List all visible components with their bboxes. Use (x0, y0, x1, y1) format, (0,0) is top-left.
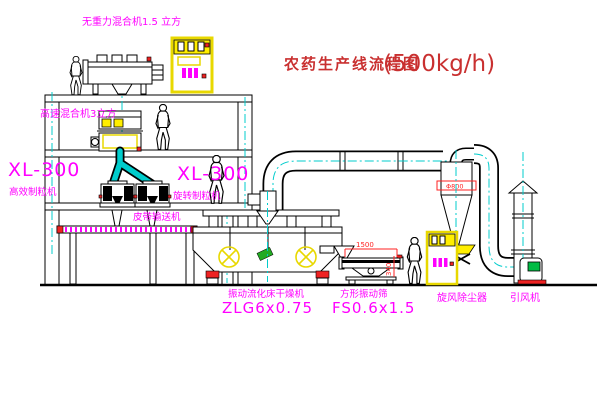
dryer-foot (207, 278, 218, 284)
sieve-height-dim: 340 (385, 263, 393, 276)
status-dot (450, 262, 454, 266)
dryer-spring-support (316, 271, 329, 278)
indicator-bar (444, 258, 448, 267)
vibration-mount (209, 216, 218, 227)
mixer2-yellow-panel (102, 119, 111, 127)
sieve-motor (368, 268, 374, 274)
status-dot (147, 57, 151, 61)
indicator-bar (433, 258, 437, 267)
sieve-foot (387, 280, 393, 284)
mixer-motor (152, 65, 163, 80)
induced-draft-fan (518, 258, 546, 284)
fan-label: 引风机 (510, 291, 540, 304)
mixer-inlet (127, 55, 137, 62)
belt-conveyor-label: 皮带输送机 (133, 211, 181, 223)
dryer-exhaust-duct (273, 151, 456, 214)
building-mid-slab (45, 150, 252, 157)
mixer-body (88, 62, 152, 84)
top-mixer-label: 无重力混合机1.5 立方 (82, 15, 181, 28)
vent-slit (432, 236, 437, 244)
indicator-bar (188, 68, 192, 78)
worker-figure (156, 104, 170, 149)
cyclone-label: 旋风除尘器 (437, 291, 487, 304)
vent-slit (178, 42, 184, 51)
status-dot (99, 195, 102, 198)
status-dot (202, 74, 206, 78)
mixer-discharge-cone (112, 84, 132, 94)
cabinet-window (178, 57, 200, 65)
mixer-inlet (97, 55, 107, 62)
granulator-block (159, 186, 168, 201)
granulator-base (135, 203, 170, 207)
mixer-leg (141, 84, 146, 94)
dryer-foot (317, 278, 328, 284)
granulator-block (103, 186, 112, 201)
cad-flow-diagram: 1500 340 Φ800 (0, 0, 600, 403)
motor-shaft (92, 139, 99, 146)
granulator-left-name: 高效制粒机 (9, 186, 57, 198)
granulator-left-unit (99, 181, 136, 226)
drawing-canvas: 1500 340 Φ800 (0, 0, 600, 403)
fan-base (518, 280, 546, 284)
status-dot (168, 195, 171, 198)
diagram-capacity: (500kg/h) (383, 51, 495, 77)
building-top-slab (45, 95, 252, 102)
floor2-mixer-label: 高速混合机3立方 (40, 107, 116, 120)
dryer-outlet-spout (320, 246, 334, 253)
status-dot (134, 195, 137, 198)
indicator-bar (182, 68, 186, 78)
duct-fill (273, 161, 443, 212)
mixer2-inner (103, 135, 137, 148)
vent-slit (198, 42, 204, 51)
vent-slit (440, 236, 445, 244)
fan-motor (528, 262, 540, 271)
granulator-mid-name: 旋转制粒机 (173, 190, 221, 202)
cyclone-diameter-dim: Φ800 (446, 183, 464, 191)
dryer-spring-support (206, 271, 219, 278)
indicator-bar (194, 68, 198, 78)
granulator-block (124, 186, 133, 201)
worker-figure (70, 56, 82, 94)
indicator-bar (439, 258, 443, 267)
control-cabinet-2 (427, 232, 457, 284)
sieve-foot (349, 280, 355, 284)
mixer-inlet (112, 55, 122, 62)
vibration-mount (248, 216, 257, 227)
worker-figure (407, 237, 421, 283)
granulator-left-model: XL-300 (8, 159, 80, 181)
conveyor-leg (150, 233, 156, 284)
feed-connector (248, 194, 261, 205)
granulator-discharge (112, 210, 122, 226)
vibration-mount (287, 216, 296, 227)
sieve-funnel (334, 246, 354, 258)
status-dot (137, 147, 141, 151)
belt-conveyor (57, 226, 197, 285)
vibration-mount (322, 216, 331, 227)
granulator-block (138, 186, 147, 201)
status-dot (397, 255, 402, 258)
sieve-model-label: FS0.6x1.5 (332, 299, 415, 317)
mixer-end-flange (83, 60, 88, 84)
conveyor-leg (70, 233, 76, 284)
conveyor-roller (57, 226, 63, 233)
dryer-model-label: ZLG6x0.75 (222, 299, 313, 317)
granulator-base (100, 203, 135, 207)
status-dot (205, 43, 209, 47)
mixer-leg (93, 84, 98, 94)
vent-slit (188, 42, 194, 51)
sieve-length-dim: 1500 (356, 241, 374, 249)
mixer2-yellow-panel (114, 119, 123, 127)
granulator-mid-model: XL-300 (177, 163, 249, 185)
control-cabinet-1 (172, 38, 212, 92)
